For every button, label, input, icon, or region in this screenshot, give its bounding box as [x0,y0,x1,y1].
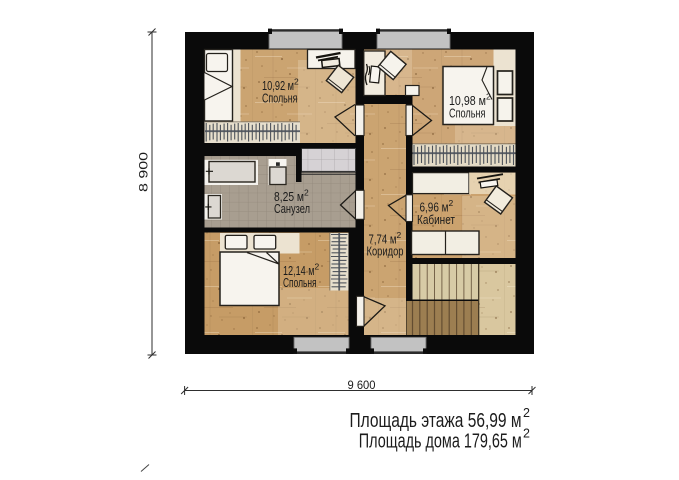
svg-text:Спольня: Спольня [283,275,317,290]
svg-text:2: 2 [397,230,402,240]
svg-text:Площадь этажа 56,99 м: Площадь этажа 56,99 м [350,410,522,432]
svg-text:2: 2 [304,187,309,197]
svg-text:Площадь дома 179,65 м: Площадь дома 179,65 м [359,431,522,453]
svg-text:2: 2 [523,406,530,420]
svg-text:2: 2 [315,262,320,272]
svg-text:Санузел: Санузел [274,201,310,216]
svg-text:Кабинет: Кабинет [417,212,455,227]
svg-text:2: 2 [523,427,530,441]
svg-text:8 900: 8 900 [137,152,151,192]
svg-text:2: 2 [294,77,299,87]
svg-text:Коридор: Коридор [367,244,404,259]
svg-text:Спольня: Спольня [449,105,486,120]
svg-text:9 600: 9 600 [348,378,376,392]
svg-text:2: 2 [449,198,454,208]
svg-text:2: 2 [486,92,491,102]
svg-text:Спольня: Спольня [262,90,298,105]
